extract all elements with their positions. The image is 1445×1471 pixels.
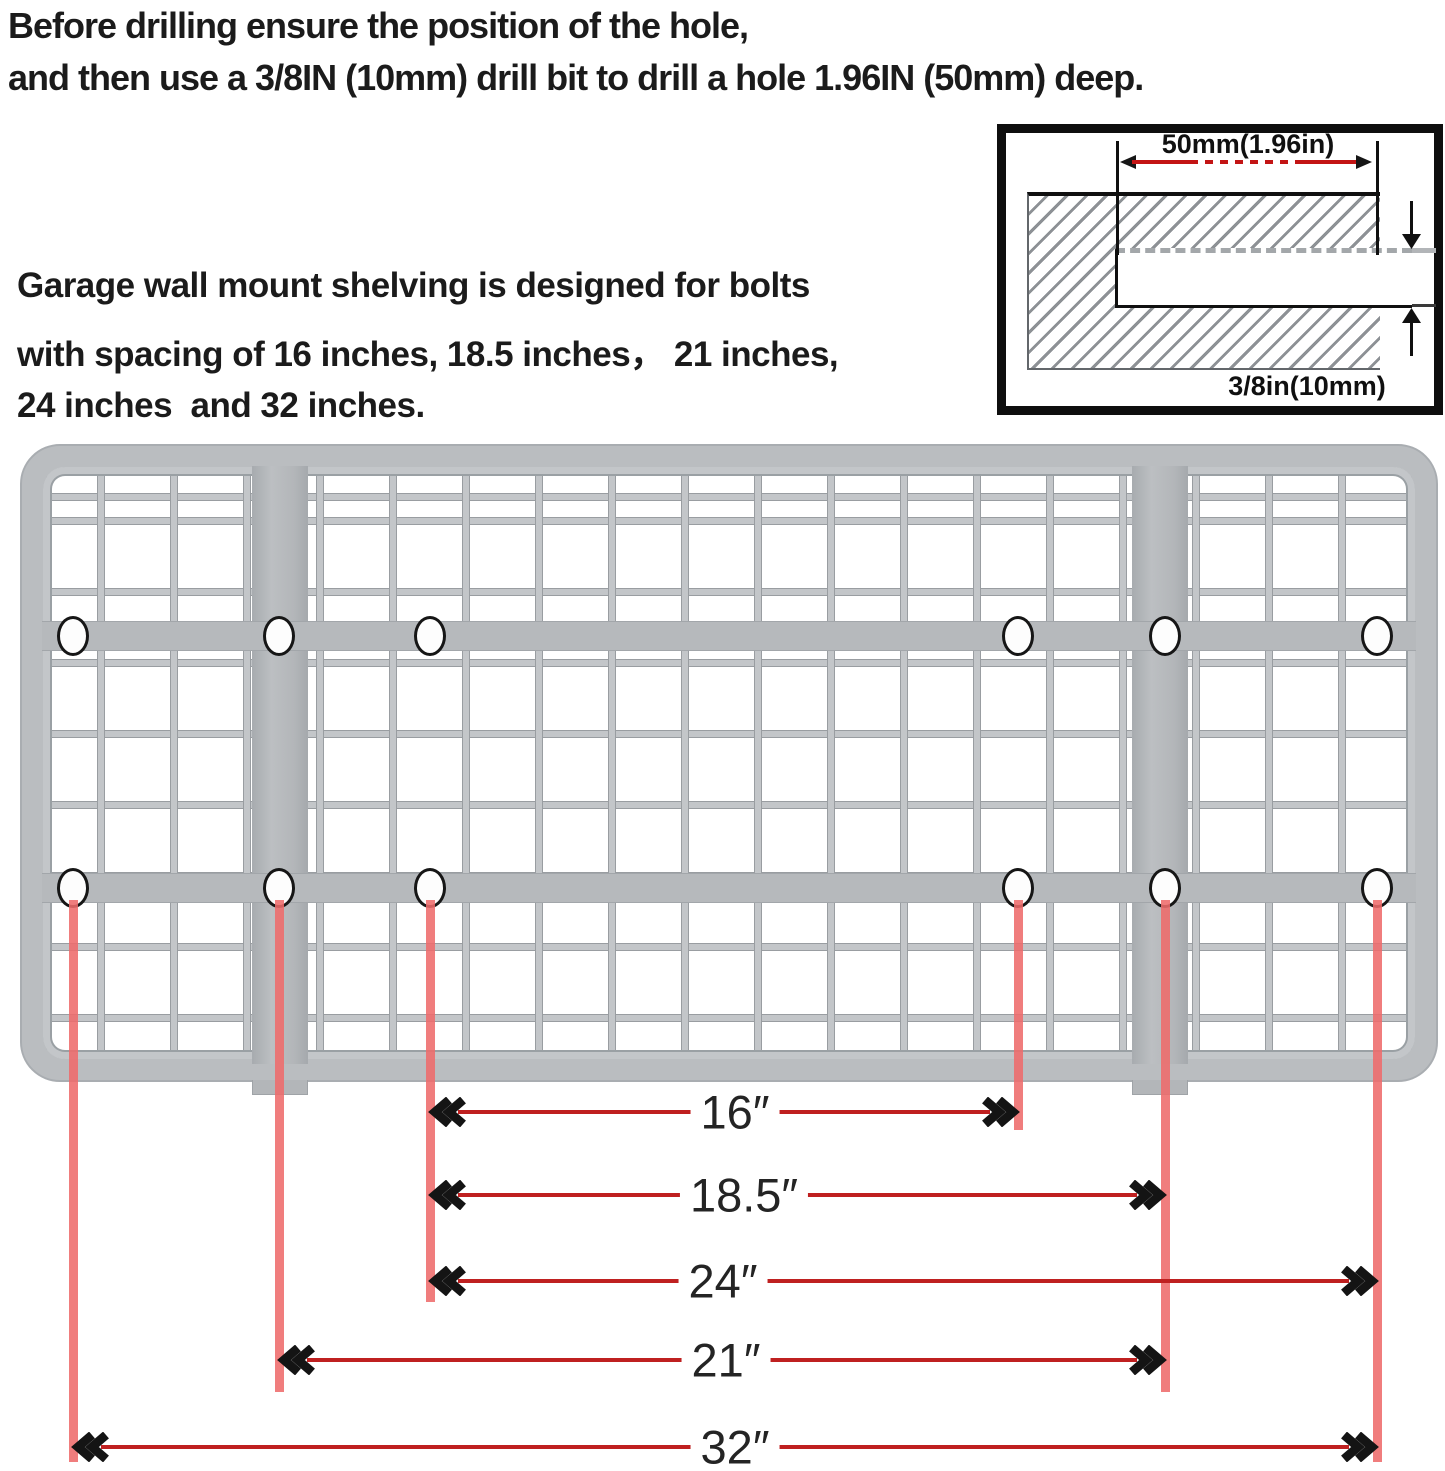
arrow-right-icon	[1341, 1432, 1379, 1462]
dimension-line	[458, 1279, 1349, 1283]
description-line-2: with spacing of 16 inches, 18.5 inches， …	[17, 326, 838, 377]
diameter-arrow-up-line	[1410, 322, 1413, 356]
dimension-row-18-5: 18.5″	[430, 1180, 1165, 1210]
drill-hole-inset-diagram: 50mm(1.96in) 3/8in(10mm)	[997, 124, 1443, 415]
dimension-row-24: 24″	[430, 1266, 1377, 1296]
brace-tab-right	[1132, 1080, 1188, 1095]
description-line-1: Garage wall mount shelving is designed f…	[17, 266, 810, 306]
heading-line-2: and then use a 3/8IN (10mm) drill bit to…	[8, 57, 1143, 99]
arrow-up-icon	[1402, 308, 1421, 323]
dimension-line-dotted	[1190, 160, 1302, 164]
grid-surface	[43, 467, 1415, 1059]
instruction-sheet: Before drilling ensure the position of t…	[0, 0, 1445, 1471]
arrow-down-icon	[1402, 234, 1421, 249]
dimension-label: 21″	[682, 1335, 771, 1384]
guide-line-hole-6	[1373, 900, 1382, 1462]
dimension-line-solid	[1132, 160, 1190, 164]
mounting-hole	[1002, 616, 1034, 656]
guide-line-hole-1	[69, 900, 78, 1462]
shelf-panel	[20, 444, 1438, 1082]
dimension-row-32: 32″	[73, 1432, 1377, 1462]
arrow-right-icon	[1129, 1180, 1167, 1210]
mounting-hole	[414, 616, 446, 656]
dimension-row-21: 21″	[279, 1345, 1165, 1375]
dimension-label: 32″	[691, 1422, 780, 1471]
mounting-rail-upper	[42, 621, 1416, 651]
mounting-rail-lower	[42, 873, 1416, 903]
guide-line-hole-2	[275, 900, 284, 1392]
arrow-right-icon	[1341, 1266, 1379, 1296]
arrow-right-icon	[1129, 1345, 1167, 1375]
depth-label: 50mm(1.96in)	[1118, 129, 1378, 160]
dimension-row-16: 16″	[430, 1097, 1018, 1127]
guide-line-hole-4	[1014, 900, 1023, 1130]
heading-line-1: Before drilling ensure the position of t…	[8, 5, 748, 47]
vertical-brace-right	[1132, 466, 1188, 1064]
hole-edge-stub-bottom	[1412, 304, 1436, 307]
dimension-label: 16″	[691, 1087, 780, 1136]
mounting-hole	[263, 616, 295, 656]
dimension-label: 24″	[679, 1256, 768, 1305]
guide-line-hole-5	[1161, 900, 1170, 1392]
dimension-label: 18.5″	[680, 1170, 808, 1219]
mounting-hole	[1149, 616, 1181, 656]
diameter-label: 3/8in(10mm)	[1192, 371, 1422, 402]
mounting-hole	[1361, 616, 1393, 656]
dimension-line-solid	[1302, 160, 1360, 164]
mounting-hole	[57, 616, 89, 656]
drill-hole	[1115, 248, 1412, 308]
description-line-3: 24 inches and 32 inches.	[17, 386, 425, 426]
diameter-arrow-down-line	[1410, 201, 1413, 235]
hole-edge-stub-top	[1412, 248, 1436, 253]
arrow-right-icon	[982, 1097, 1020, 1127]
